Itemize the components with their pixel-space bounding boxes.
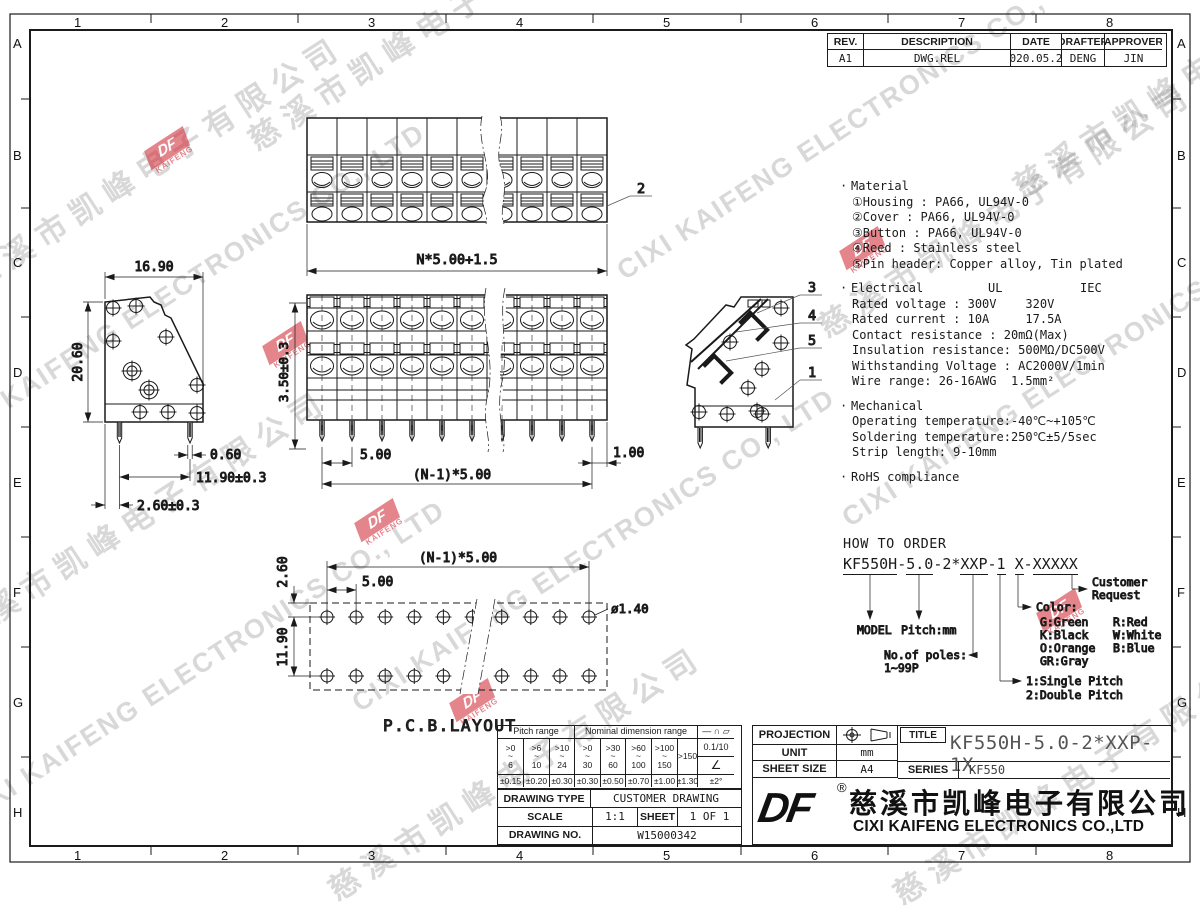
bullet-icon: · — [840, 399, 847, 415]
drawing-no-value: W15000342 — [593, 827, 741, 844]
pitch-tol: ±0.20 — [524, 775, 550, 787]
rev-header: REV. — [828, 34, 864, 50]
drawing-info-table: DRAWING TYPE CUSTOMER DRAWING SCALE 1:1 … — [497, 789, 742, 845]
grid-col-label: 6 — [811, 15, 818, 30]
drawing-no-label: DRAWING NO. — [498, 827, 593, 844]
electrical-title: Electrical — [851, 281, 923, 295]
angle-symbol: ∠ — [698, 757, 734, 774]
rev-value: DWG.REL — [864, 50, 1011, 66]
dim-front-height: 3.50±0.3 — [276, 342, 291, 402]
angle-tol: ±2° — [698, 775, 734, 787]
company-name-en: CIXI KAIFENG ELECTRONICS CO.,LTD — [853, 818, 1144, 836]
grid-col-label: 2 — [221, 15, 228, 30]
mechanical-title: Mechanical — [851, 399, 923, 413]
grid-col-label: 8 — [1106, 15, 1113, 30]
grid-row-label: F — [1177, 585, 1185, 600]
series-value: KF550 — [959, 761, 1170, 778]
tolerance-table: Pitch range Nominal dimension range — ∩ … — [497, 725, 742, 789]
rev-value: A1 — [828, 50, 864, 66]
straightness-value: 0.1/10 — [698, 739, 734, 757]
drawing-type-value: CUSTOMER DRAWING — [591, 790, 741, 807]
grid-row-label: B — [13, 148, 22, 163]
electrical-iec-col: IEC — [1080, 281, 1102, 297]
dim-pcb-span: (N-1)*5.00 — [419, 551, 497, 566]
material-item: ③Button : PA66, UL94V-0 — [840, 226, 1192, 242]
drawing-type-label: DRAWING TYPE — [498, 790, 591, 807]
grid-col-label: 4 — [516, 15, 523, 30]
material-item: ④Reed : Stainless steel — [840, 241, 1192, 257]
electrical-item: Rated voltage : 300V 320V — [840, 297, 1192, 313]
rev-value: 2020.05.28 — [1011, 50, 1062, 66]
scale-value: 1:1 — [593, 808, 638, 825]
nominal-range: >150 — [678, 739, 698, 775]
order-code: KF550H-5.0-2*XXP-1 X-XXXXX — [843, 555, 1078, 573]
bullet-icon: · — [840, 179, 847, 195]
straightness-angle-cell: 0.1/10 ∠ — [698, 739, 734, 775]
grid-row-label: G — [13, 695, 23, 710]
sheet-value: 1 OF 1 — [678, 808, 741, 825]
dim-pin-offset: 2.60±0.3 — [137, 499, 200, 514]
company-block: DF ® 慈溪市凯峰电子有限公司 CIXI KAIFENG ELECTRONIC… — [753, 778, 1171, 844]
grid-col-label: 2 — [221, 848, 228, 863]
bullet-icon: · — [840, 281, 847, 297]
electrical-section: ·ElectricalULIEC Rated voltage : 300V 32… — [840, 281, 1192, 390]
plan-dimension — [307, 224, 607, 276]
rohs-section: ·RoHS compliance — [840, 470, 1192, 486]
dim-pcb-rows: 11.90 — [276, 627, 291, 666]
side-view: 16.90 20.60 0.60 11.90±0.3 2.60±0.3 — [71, 260, 266, 514]
series-label: SERIES — [898, 761, 959, 778]
grid-row-label: A — [13, 36, 22, 51]
order-color-black: K:Black — [1040, 628, 1089, 642]
dim-pcb-top: 2.60 — [276, 556, 291, 587]
rev-value: JIN — [1105, 50, 1162, 66]
dim-pcb-hole: ø1.40 — [611, 601, 649, 616]
grid-col-label: 4 — [516, 848, 523, 863]
order-color-gray: GR:Gray — [1040, 654, 1089, 668]
grid-row-label: C — [13, 255, 22, 270]
material-item: ②Cover : PA66, UL94V-0 — [840, 210, 1192, 226]
grid-col-label: 3 — [368, 848, 375, 863]
dim-side-width: 16.90 — [134, 260, 173, 275]
nominal-tol: ±0.30 — [575, 775, 601, 787]
dim-plan-width: N*5.00+1.5 — [416, 252, 497, 268]
callout-3: 3 — [808, 280, 816, 296]
nominal-range: >100 ~ 150 — [652, 739, 678, 775]
registered-mark: ® — [837, 780, 847, 795]
nominal-tol: ±0.50 — [601, 775, 626, 787]
nominal-range: >60 ~ 100 — [626, 739, 652, 775]
nominal-tol: ±0.70 — [626, 775, 652, 787]
bullet-icon: · — [840, 470, 847, 486]
grid-col-label: 1 — [74, 848, 81, 863]
order-poles-range: 1~99P — [884, 661, 919, 675]
how-to-order-title: HOW TO ORDER — [843, 536, 947, 552]
spec-panel: ·Material ①Housing : PA66, UL94V-0 ②Cove… — [840, 179, 1192, 494]
pitch-range: >10 ~ 24 — [550, 739, 575, 775]
electrical-item: Withstanding Voltage : AC2000V/1min — [840, 359, 1192, 375]
df-logo-icon: DF — [755, 786, 815, 830]
electrical-item: Rated current : 10A 17.5A — [840, 312, 1192, 328]
callout-2: 2 — [637, 181, 645, 197]
grid-col-label: 6 — [811, 848, 818, 863]
order-color-blue: B:Blue — [1113, 641, 1155, 655]
material-item: ⑤Pin header: Copper alloy, Tin plated — [840, 257, 1192, 273]
grid-row-label: F — [13, 585, 21, 600]
grid-row-label: B — [1177, 148, 1186, 163]
unit-label: UNIT — [753, 745, 837, 761]
geometry-symbols: — ∩ ▱ — [698, 726, 734, 739]
order-color-green: G:Green — [1040, 615, 1088, 629]
grid-row-label: G — [1177, 695, 1187, 710]
dim-front-end: 1.00 — [613, 446, 644, 461]
electrical-item: Wire range: 26-16AWG 1.5mm² — [840, 374, 1192, 390]
sheet-label: SHEET — [638, 808, 678, 825]
order-single-pitch: 1:Single Pitch — [1026, 674, 1123, 688]
title-zone: TITLE KF550H-5.0-2*XXP-1X — [898, 726, 1170, 762]
front-view: 3.50±0.3 5.00 (N-1)*5.00 1.00 — [276, 288, 644, 489]
dim-pcb-pitch: 5.00 — [362, 575, 393, 590]
callout-4: 4 — [808, 308, 816, 324]
nominal-tol: ±1.30 — [678, 775, 698, 787]
rohs-label: RoHS compliance — [851, 470, 959, 484]
sheet-size-value: A4 — [837, 761, 898, 778]
plan-view: N*5.00+1.5 2 — [307, 116, 652, 276]
pitch-tol: ±0.30 — [550, 775, 575, 787]
grid-col-label: 8 — [1106, 848, 1113, 863]
order-customer-line1: Customer — [1092, 575, 1147, 589]
dim-pin-width: 0.60 — [210, 448, 241, 463]
grid-col-label: 5 — [663, 15, 670, 30]
pitch-range: >0 ~ 6 — [498, 739, 524, 775]
callout-2-leader — [607, 196, 652, 206]
grid-row-label: E — [13, 475, 22, 490]
projection-label: PROJECTION — [753, 726, 837, 745]
electrical-item: Insulation resistance: 500MΩ/DC500V — [840, 343, 1192, 359]
scale-label: SCALE — [498, 808, 593, 825]
company-name-cn: 慈溪市凯峰电子有限公司 — [849, 782, 1169, 822]
order-poles-label: No.of poles: — [884, 648, 967, 662]
material-section: ·Material ①Housing : PA66, UL94V-0 ②Cove… — [840, 179, 1192, 272]
grid-row-label: A — [1177, 36, 1186, 51]
nominal-range: >0 ~ 30 — [575, 739, 601, 775]
callout-5: 5 — [808, 333, 816, 349]
grid-col-label: 3 — [368, 15, 375, 30]
dim-side-height: 20.60 — [71, 342, 86, 381]
title-block: PROJECTION UNIT mm SHEET SIZE A4 TITLE K… — [752, 725, 1172, 845]
rev-header: DRAFTER — [1062, 34, 1105, 50]
order-color-red: R:Red — [1113, 615, 1148, 629]
nominal-range: >30 ~ 60 — [601, 739, 626, 775]
grid-col-label: 7 — [958, 848, 965, 863]
nominal-tol: ±1.00 — [652, 775, 678, 787]
projection-symbol-cell — [837, 726, 898, 745]
series-row: SERIES KF550 — [898, 761, 1170, 779]
order-tree: MODEL Pitch:mm No.of poles: 1~99P 1:Sing… — [857, 575, 1162, 702]
material-title: Material — [851, 179, 909, 193]
dim-front-span: (N-1)*5.00 — [413, 468, 491, 483]
rev-value: DENG — [1062, 50, 1105, 66]
pitch-range-header: Pitch range — [498, 726, 575, 739]
grid-row-label: H — [13, 805, 22, 820]
callout-1: 1 — [808, 365, 816, 381]
mechanical-item: Operating temperature:-40℃~+105℃ — [840, 414, 1192, 430]
rev-header: DATE — [1011, 34, 1062, 50]
title-label: TITLE — [900, 727, 946, 743]
third-angle-projection-icon — [838, 726, 896, 744]
nominal-range-header: Nominal dimension range — [575, 726, 698, 739]
pitch-range: >6 ~ 10 — [524, 739, 550, 775]
sheet-size-label: SHEET SIZE — [753, 761, 837, 778]
unit-value: mm — [837, 745, 898, 761]
order-customer-line2: Request — [1092, 588, 1140, 602]
grid-col-label: 7 — [958, 15, 965, 30]
mechanical-item: Strip length: 9-10mm — [840, 445, 1192, 461]
electrical-item: Contact resistance : 20mΩ(Max) — [840, 328, 1192, 344]
mechanical-section: ·Mechanical Operating temperature:-40℃~+… — [840, 399, 1192, 461]
dim-pin-span: 11.90±0.3 — [196, 471, 266, 486]
revision-table: REV. DESCRIPTION DATE DRAFTER APPROVER A… — [827, 33, 1167, 67]
section-view: 3 4 5 1 — [686, 280, 822, 448]
mechanical-item: Soldering temperature:250℃±5/5sec — [840, 430, 1192, 446]
pitch-tol: ±0.15 — [498, 775, 524, 787]
order-color-label: Color: — [1036, 600, 1078, 614]
grid-col-label: 1 — [74, 15, 81, 30]
order-double-pitch: 2:Double Pitch — [1026, 688, 1123, 702]
order-model-label: MODEL — [857, 623, 892, 637]
rev-header: DESCRIPTION — [864, 34, 1011, 50]
order-color-orange: O:Orange — [1040, 641, 1095, 655]
material-item: ①Housing : PA66, UL94V-0 — [840, 195, 1192, 211]
dim-front-pitch: 5.00 — [360, 448, 391, 463]
grid-row-label: D — [13, 365, 22, 380]
grid-col-label: 5 — [663, 848, 670, 863]
electrical-ul-col: UL — [988, 281, 1002, 297]
order-pitch-label: Pitch:mm — [901, 623, 956, 637]
order-color-white: W:White — [1113, 628, 1162, 642]
rev-header: APPROVER — [1105, 34, 1162, 50]
pcb-layout: (N-1)*5.00 5.00 2.60 11.90 ø1.40 P.C.B.L… — [276, 551, 649, 735]
